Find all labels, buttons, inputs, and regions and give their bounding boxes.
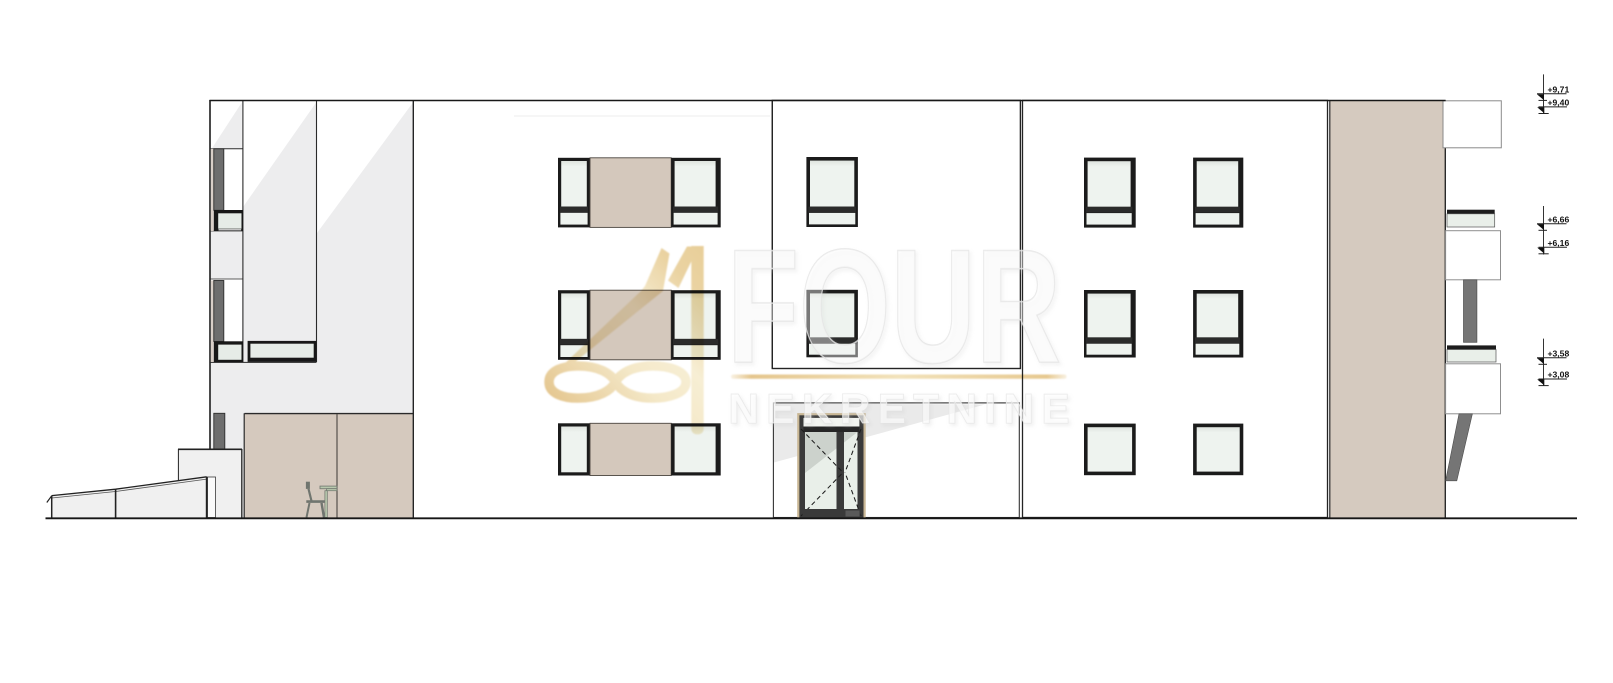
svg-text:+3,08: +3,08 [1548, 370, 1570, 380]
svg-text:+9,40: +9,40 [1548, 98, 1570, 108]
svg-text:+3,58: +3,58 [1548, 348, 1570, 358]
svg-text:+6,16: +6,16 [1548, 238, 1570, 248]
svg-text:NEKRETNINE: NEKRETNINE [729, 385, 1070, 432]
svg-text:FOUR: FOUR [727, 216, 1061, 397]
svg-text:+6,66: +6,66 [1548, 214, 1570, 224]
svg-text:+9,71: +9,71 [1548, 85, 1570, 95]
